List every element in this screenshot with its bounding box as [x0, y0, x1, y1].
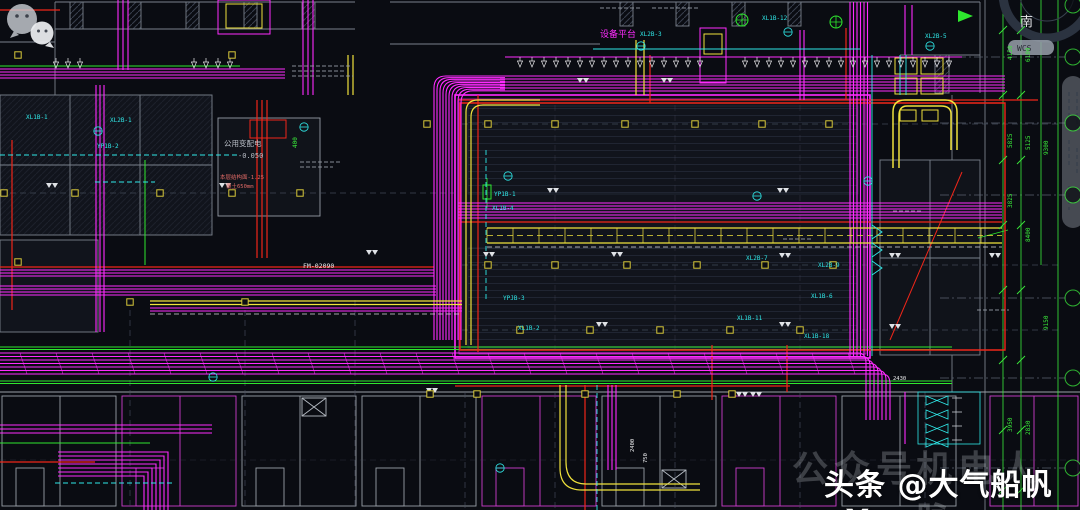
- riser-tag: XL1B-11: [737, 315, 763, 322]
- column-marker-icon: [297, 190, 303, 196]
- dimension-label: 2430: [893, 376, 906, 382]
- dimension-label: 4150: [1007, 45, 1014, 60]
- column-marker-icon: [552, 262, 558, 268]
- column-marker-icon: [762, 262, 768, 268]
- column-marker-icon: [582, 391, 588, 397]
- grid-bubble: [1065, 187, 1080, 203]
- room-label: 公用变配电: [224, 138, 262, 148]
- column-marker-icon: [692, 121, 698, 127]
- column-marker-icon: [127, 299, 133, 305]
- dimension-label: 3950: [1007, 417, 1014, 432]
- column-marker-icon: [587, 327, 593, 333]
- dimension-label: 2400: [630, 439, 636, 452]
- column-marker-icon: [424, 121, 430, 127]
- platform-label: 设备平台: [600, 28, 636, 40]
- riser-tag: YPJB-3: [503, 295, 525, 302]
- riser-tag: XL2B-5: [925, 33, 947, 40]
- riser-tag: XL1B-6: [811, 293, 833, 300]
- compass-label: 南: [1020, 14, 1033, 30]
- grid-bubble: [1065, 0, 1080, 13]
- riser-tag: YP1B-1: [494, 191, 516, 198]
- column-marker-icon: [485, 121, 491, 127]
- column-marker-icon: [157, 190, 163, 196]
- column-marker-icon: [474, 391, 480, 397]
- grid-bubble: [1065, 460, 1080, 476]
- riser-tag: XL2B-9: [818, 262, 840, 269]
- grid-bubble: [1065, 115, 1080, 131]
- column-marker-icon: [15, 52, 21, 58]
- riser-tag: YP1B-2: [97, 143, 119, 150]
- column-marker-icon: [552, 121, 558, 127]
- dimension-label: 3825: [1007, 193, 1014, 208]
- dimension-label: 2830: [1025, 420, 1032, 435]
- note-label: 覆土650mm: [226, 182, 254, 190]
- level-label: -0.050: [238, 152, 263, 160]
- riser-tag: XL2B-1: [110, 117, 132, 124]
- column-marker-icon: [72, 190, 78, 196]
- cad-screenshot: XL1B-1XL2B-1YP1B-2YP1B-1XL1B-4YPJB-3XL1B…: [0, 0, 1080, 510]
- column-marker-icon: [674, 391, 680, 397]
- riser-tag: XL1B-2: [518, 325, 540, 332]
- column-marker-icon: [759, 121, 765, 127]
- column-marker-icon: [229, 52, 235, 58]
- cad-canvas: XL1B-1XL2B-1YP1B-2YP1B-1XL1B-4YPJB-3XL1B…: [0, 0, 1080, 510]
- column-marker-icon: [485, 262, 491, 268]
- dimension-label: 750: [643, 453, 649, 463]
- column-marker-icon: [229, 190, 235, 196]
- column-marker-icon: [694, 262, 700, 268]
- column-marker-icon: [15, 259, 21, 265]
- survey-target-icon: [830, 16, 842, 28]
- dimension-label: 9300: [1043, 140, 1050, 155]
- dimension-label: 400: [292, 137, 299, 148]
- riser-tag: XL2B-3: [640, 31, 662, 38]
- column-marker-icon: [622, 121, 628, 127]
- dimension-label: 8400: [1025, 227, 1032, 242]
- riser-tag: XL1B-12: [762, 15, 788, 22]
- grid-bubble: [1065, 290, 1080, 306]
- dimension-label: 9150: [1043, 315, 1050, 330]
- survey-target-icon: [736, 14, 748, 26]
- column-marker-icon: [427, 391, 433, 397]
- column-marker-icon: [657, 327, 663, 333]
- column-marker-icon: [1, 190, 7, 196]
- note-label: 本层结构面-1.25: [220, 173, 264, 181]
- riser-tag: XL1B-4: [492, 205, 514, 212]
- hall: [455, 95, 870, 358]
- fire-damper-tag: FM-02090: [303, 262, 334, 270]
- riser-tag: XL1B-18: [804, 333, 830, 340]
- column-marker-icon: [826, 121, 832, 127]
- riser-tag: XL1B-1: [26, 114, 48, 121]
- dimension-label: 5125: [1025, 135, 1032, 150]
- riser-tag: XL2B-7: [746, 255, 768, 262]
- column-marker-icon: [727, 327, 733, 333]
- column-marker-icon: [242, 299, 248, 305]
- column-marker-icon: [729, 391, 735, 397]
- grid-bubble: [1065, 49, 1080, 65]
- dimension-label: 5825: [1007, 133, 1014, 148]
- column-marker-icon: [624, 262, 630, 268]
- dimension-label: 6100: [1025, 47, 1032, 62]
- column-marker-icon: [797, 327, 803, 333]
- grid-bubble: [1065, 370, 1080, 386]
